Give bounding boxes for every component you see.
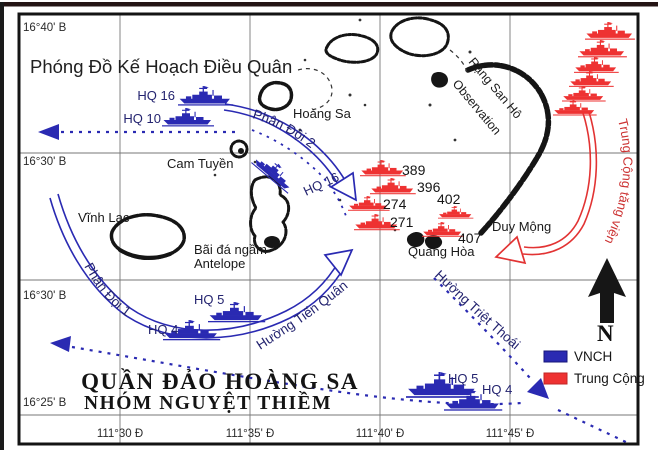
label-hq4-left: HQ 4 [148, 322, 178, 337]
label-antelope-2: Antelope [194, 256, 245, 271]
legend-swatch-trung-cong [544, 373, 567, 384]
ship-prc-column-6 [553, 100, 597, 115]
label-hq10: HQ 10 [123, 111, 161, 126]
scan-edge-left [0, 2, 4, 450]
ship-prc-column-4 [569, 71, 614, 87]
label-cam-tuyen: Cam Tuyền [167, 156, 233, 171]
legend-swatch-vnch [544, 351, 567, 362]
paracel-battle-map: Phóng Đồ Kế Hoạch Điều Quân 16°40' B 16°… [0, 0, 658, 476]
reef-antelope-south-rim [120, 250, 170, 258]
ship-prc-402 [438, 206, 473, 219]
ship-prc-396 [370, 178, 416, 194]
ship-prc-column-1 [585, 22, 635, 40]
legend: VNCH Trung Cộng [544, 349, 645, 386]
label-prc-402: 402 [437, 191, 461, 207]
prc-reinforce-arrowhead [496, 237, 525, 263]
island-hoang-sa-shape [260, 83, 292, 110]
reef-link-dashed [450, 50, 467, 72]
ship-prc-column-2 [578, 40, 627, 57]
lon-label-11145: 111°45' Đ [486, 428, 535, 440]
reef-crescent-shape [468, 65, 548, 233]
label-duy-mong: Duy Mộng [492, 219, 551, 234]
reef-north-1 [326, 34, 378, 62]
ship-hq16-top [178, 86, 233, 106]
region-title-line1: QUẦN ĐẢO HOÀNG SA [81, 368, 359, 394]
scan-edge-top [0, 2, 658, 7]
ship-hq10 [162, 108, 214, 126]
islands-reefs [111, 18, 548, 258]
label-prc-407: 407 [458, 230, 482, 246]
legend-label-trung-cong: Trung Cộng [574, 371, 645, 386]
north-arrow-glyph [588, 258, 626, 323]
ship-prc-column-3 [574, 57, 619, 73]
islet-small [431, 72, 448, 88]
legend-label-vnch: VNCH [574, 349, 612, 364]
lon-label-11140: 111°40' Đ [356, 428, 405, 440]
label-hq16-top: HQ 16 [137, 88, 175, 103]
map-title: Phóng Đồ Kế Hoạch Điều Quân [30, 56, 292, 77]
north-arrow: N [588, 258, 626, 346]
lat-label-1630b: 16°30' B [23, 290, 67, 302]
ship-hq16-mid [251, 150, 299, 194]
label-hq4-right: HQ 4 [482, 382, 512, 397]
lat-label-1630a: 16°30' B [23, 156, 67, 168]
reef-north-2 [391, 18, 449, 56]
label-tang-vien: Trung Cộng tăng viện [602, 117, 636, 246]
label-tien-quan: Hường Tiến Quân [254, 278, 351, 353]
label-quang-hoa: Quang Hòa [408, 244, 475, 259]
north-label: N [597, 321, 614, 346]
label-hq16-mid: HQ 16 [301, 169, 341, 198]
lon-label-11130: 111°30 Đ [97, 428, 143, 440]
lat-label-1640: 16°40' B [23, 22, 67, 34]
ship-prc-column-5 [562, 86, 606, 101]
label-prc-271: 271 [390, 214, 414, 230]
label-antelope-1: Bãi đá ngầm [194, 242, 267, 257]
phan-doi-1-arrowhead [325, 250, 352, 275]
label-hq5-right: HQ 5 [448, 371, 478, 386]
withdraw-arrowhead-top [38, 124, 59, 140]
label-prc-389: 389 [402, 162, 426, 178]
reef-lagoon-dashed [298, 69, 332, 110]
label-vinh-lac: Vĩnh Lạc [78, 210, 130, 225]
lon-label-11135: 111°35' Đ [226, 428, 275, 440]
label-hoang-sa: Hoàng Sa [293, 106, 352, 121]
lat-label-1625: 16°25' B [23, 397, 67, 409]
label-hq5-left: HQ 5 [194, 292, 224, 307]
ship-prc-389 [360, 160, 406, 176]
label-phan-doi-1: Phân Đội 1 [81, 260, 133, 319]
island-cam-tuyen-core [238, 148, 244, 154]
region-title-line2: NHÓM NGUYỆT THIỀM [84, 392, 332, 414]
battle-map-page: Phóng Đồ Kế Hoạch Điều Quân 16°40' B 16°… [0, 0, 658, 476]
withdraw-arrowhead-bottom [50, 336, 71, 352]
label-prc-274: 274 [383, 196, 407, 212]
